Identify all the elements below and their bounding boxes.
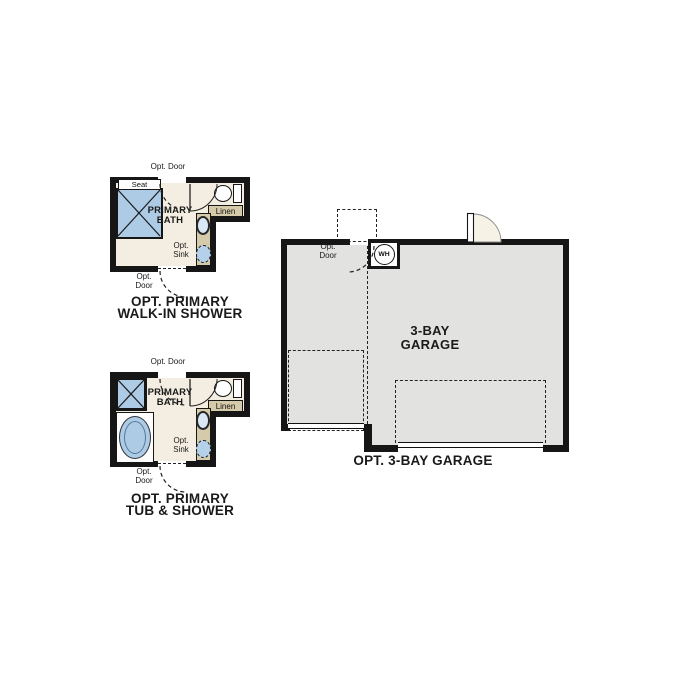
bath2-room-label: PRIMARY BATH [144, 388, 196, 408]
bath1-caption: OPT. PRIMARY WALK-IN SHOWER [100, 296, 260, 320]
garage-wall-left [281, 239, 287, 431]
linen-label: Linen [216, 207, 236, 216]
bath1-linen-cabinet: Linen [208, 205, 243, 217]
water-heater-inner: WH [371, 243, 397, 266]
bath1-wall-top-right [186, 177, 250, 183]
garage-bay3-door-zone [288, 350, 364, 431]
garage-caption: OPT. 3-BAY GARAGE [343, 455, 503, 467]
water-heater-box: WH [368, 240, 400, 269]
bath2-sink [196, 411, 210, 430]
bath2-toilet-tank [233, 379, 242, 398]
bath1-room-label: PRIMARY BATH [140, 206, 200, 226]
bath1-opt-door-bottom-label: Opt. Door [128, 273, 160, 290]
water-heater-label: WH [378, 251, 389, 258]
bath2-opt-sink-label: Opt. Sink [165, 437, 197, 454]
garage-bay-divider [367, 246, 368, 424]
bath2-wall-top-right [186, 372, 250, 378]
bath1-opt-door-top-label: Opt. Door [138, 163, 198, 172]
caption-line: WALK-IN SHOWER [100, 308, 260, 320]
bath2-bottom-door-opening [158, 463, 186, 464]
bath1-toilet-bowl [214, 185, 232, 202]
garage-entry-door-leaf [468, 214, 474, 243]
garage-room-line1: 3-BAY [380, 324, 480, 338]
garage-main-door-zone [395, 380, 546, 448]
linen-label: Linen [216, 402, 236, 411]
bath1-opt-sink-label: Opt. Sink [165, 242, 197, 259]
sink-abbr: Sink [165, 446, 197, 455]
garage-room-line2: GARAGE [380, 338, 480, 352]
bath2-optional-sink [196, 440, 211, 458]
water-heater-icon: WH [374, 244, 395, 265]
bath2-tub-inner [124, 421, 146, 454]
garage-room-label: 3-BAY GARAGE [380, 324, 480, 352]
garage-wall-bottom-right [543, 445, 569, 452]
caption-line: TUB & SHOWER [100, 505, 260, 517]
bath2-room-line2: BATH [144, 398, 196, 408]
floor-plan-canvas: Seat Linen Opt. Door PRIMARY BATH Opt. S… [0, 0, 687, 687]
door-abbr: Door [128, 477, 160, 486]
bath2-toilet-bowl [214, 380, 232, 397]
bath1-bottom-door-opening [158, 268, 186, 269]
bath2-opt-door-swing-bottom [160, 466, 186, 492]
garage-entry-door-swing [473, 214, 501, 242]
garage-opt-door-landing [337, 209, 377, 242]
garage-door-main [398, 442, 543, 448]
bath1-room-line2: BATH [140, 216, 200, 226]
bath2-opt-door-top-label: Opt. Door [138, 358, 198, 367]
garage-opt-door-label: Opt. Door [312, 243, 344, 260]
bath2-opt-door-bottom-label: Opt. Door [128, 468, 160, 485]
bath2-caption: OPT. PRIMARY TUB & SHOWER [100, 493, 260, 517]
garage-door-bay3 [288, 423, 364, 429]
bath2-wall-bottom-right [186, 461, 216, 467]
bath2-shower [116, 378, 147, 411]
door-abbr: Door [128, 282, 160, 291]
bath1-optional-sink [196, 245, 211, 263]
bath1-wall-bottom-right [186, 266, 216, 272]
garage-wall-right [563, 239, 569, 452]
garage-wall-bottom-left [366, 445, 398, 452]
bath2-linen-cabinet: Linen [208, 400, 243, 412]
seat-label: Seat [132, 180, 147, 189]
sink-abbr: Sink [165, 251, 197, 260]
bath1-toilet-tank [233, 184, 242, 203]
bath1-shower-seat: Seat [118, 179, 161, 190]
door-abbr: Door [312, 252, 344, 261]
